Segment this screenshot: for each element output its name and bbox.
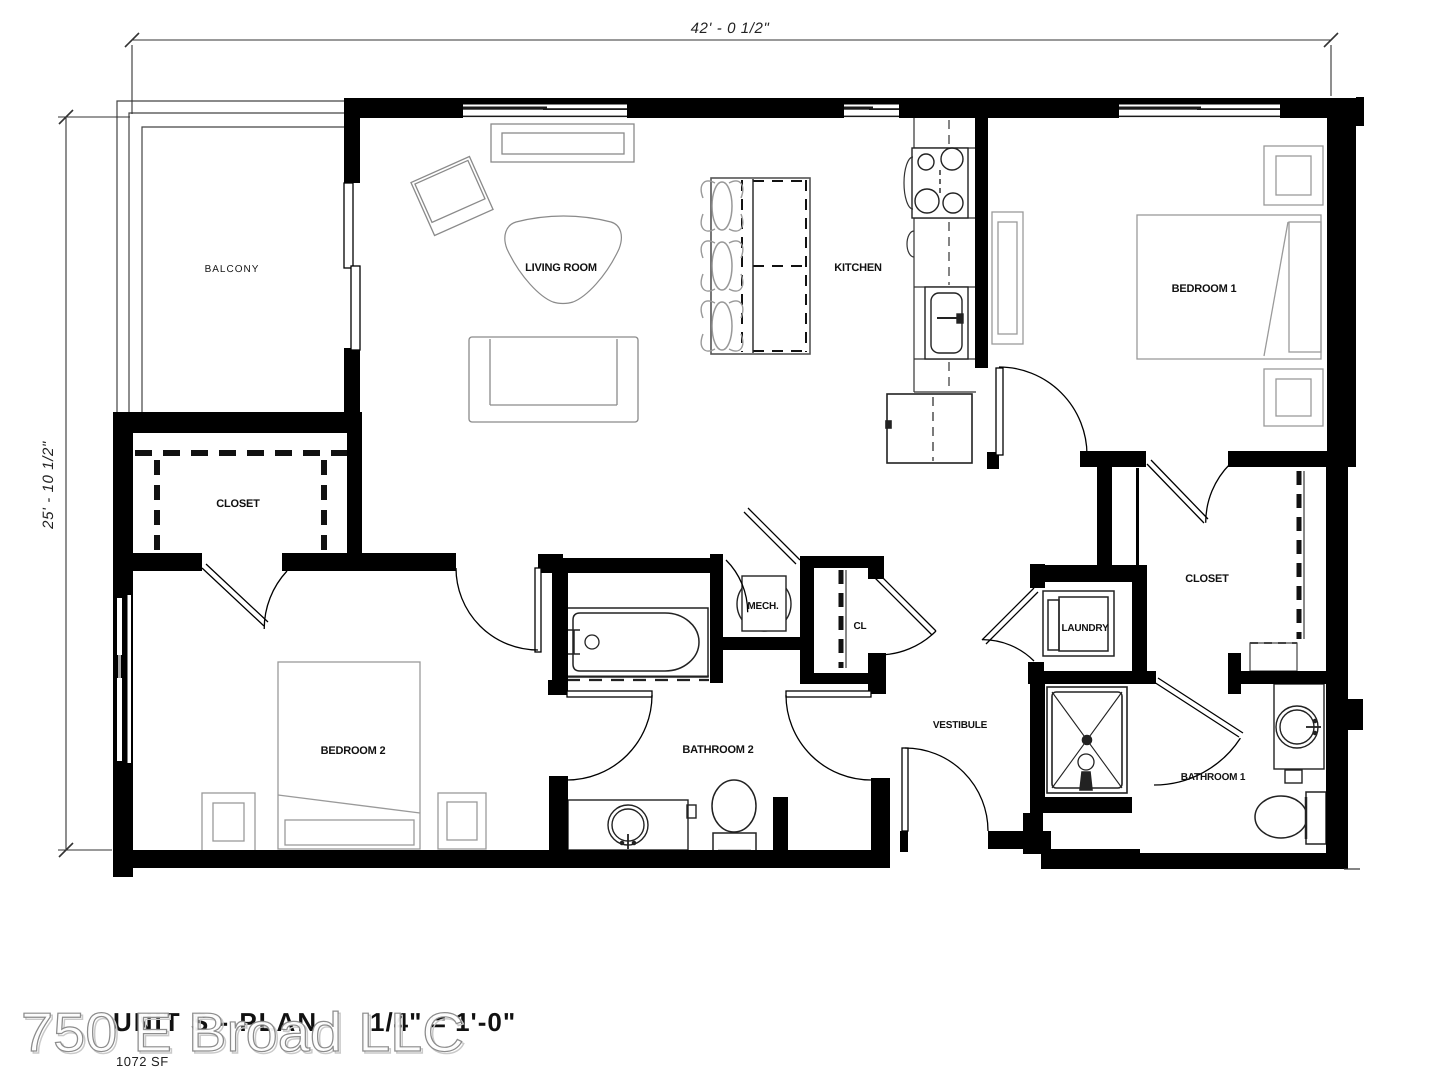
svg-text:BALCONY: BALCONY <box>205 264 260 275</box>
svg-text:KITCHEN: KITCHEN <box>834 262 882 274</box>
svg-text:BATHROOM 2: BATHROOM 2 <box>682 744 753 756</box>
svg-text:BEDROOM 2: BEDROOM 2 <box>321 745 386 757</box>
svg-text:MECH.: MECH. <box>747 601 779 612</box>
svg-text:750 E Broad LLC: 750 E Broad LLC <box>21 1001 464 1063</box>
svg-text:CLOSET: CLOSET <box>216 498 260 510</box>
svg-text:25' - 10 1/2": 25' - 10 1/2" <box>40 441 57 530</box>
svg-text:CLOSET: CLOSET <box>1185 573 1229 585</box>
svg-text:CL: CL <box>854 621 867 632</box>
svg-text:42' - 0 1/2": 42' - 0 1/2" <box>691 20 770 37</box>
svg-text:BEDROOM 1: BEDROOM 1 <box>1172 283 1237 295</box>
svg-text:VESTIBULE: VESTIBULE <box>933 720 988 731</box>
svg-text:LIVING ROOM: LIVING ROOM <box>525 262 597 274</box>
svg-text:LAUNDRY: LAUNDRY <box>1061 623 1109 634</box>
svg-text:BATHROOM 1: BATHROOM 1 <box>1181 772 1246 783</box>
